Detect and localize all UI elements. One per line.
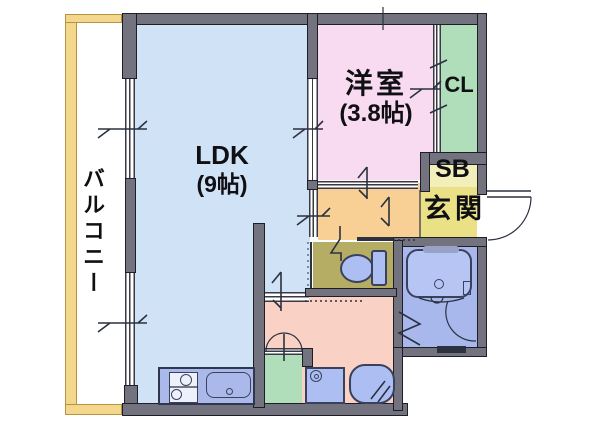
ldk-label: LDK <box>162 142 282 169</box>
vanity-faucet-icon <box>371 381 390 402</box>
arrow-window-left-upper <box>98 121 147 138</box>
western-room-label: 洋室 <box>312 69 440 98</box>
floor-plan: バルコニー LDK (9帖) 洋室 (3.8帖) CL SB 玄関 <box>0 0 600 428</box>
arrow-door-western-hall <box>358 167 367 199</box>
closet-label: CL <box>438 73 480 96</box>
western-room-size: (3.8帖) <box>312 101 440 126</box>
arrow-window-left-lower <box>98 315 147 332</box>
entrance-label: 玄関 <box>419 195 491 223</box>
storage-door-arcs <box>266 333 302 361</box>
balcony-label: バルコニー <box>74 132 104 332</box>
bathroom-door-arc <box>446 301 476 341</box>
entrance-door-arc <box>487 191 531 240</box>
bathroom-folding-door-icon <box>399 312 420 345</box>
arrow-hall-entrance <box>381 197 389 226</box>
arrow-door-ldk-washroom <box>272 272 281 311</box>
shoe-box-label: SB <box>425 156 480 182</box>
arrow-door-ldk-hall <box>297 208 330 225</box>
bathtub-lip <box>419 297 464 303</box>
arrow-toilet-door <box>331 226 341 261</box>
ldk-size: (9帖) <box>162 172 282 196</box>
